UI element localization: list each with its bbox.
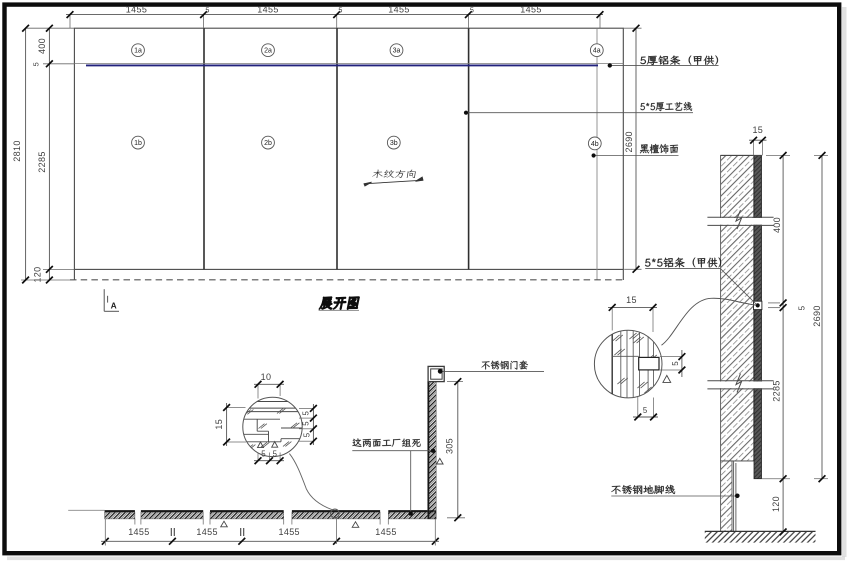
- svg-text:15: 15: [214, 419, 224, 430]
- svg-text:120: 120: [32, 266, 42, 282]
- svg-text:5: 5: [338, 5, 342, 14]
- svg-text:120: 120: [771, 496, 781, 512]
- svg-text:5: 5: [470, 5, 474, 14]
- svg-text:5: 5: [261, 449, 266, 458]
- svg-text:5: 5: [302, 411, 311, 416]
- svg-text:1455: 1455: [128, 527, 149, 537]
- svg-text:305: 305: [445, 438, 455, 454]
- svg-text:3b: 3b: [390, 140, 398, 147]
- svg-text:400: 400: [37, 38, 47, 54]
- svg-text:2285: 2285: [772, 380, 782, 401]
- svg-text:1455: 1455: [278, 527, 299, 537]
- svg-text:5: 5: [302, 421, 311, 426]
- svg-text:1455: 1455: [375, 527, 396, 537]
- svg-text:2b: 2b: [264, 140, 272, 147]
- svg-text:5: 5: [798, 305, 807, 310]
- svg-text:10: 10: [261, 372, 272, 382]
- svg-text:5: 5: [205, 5, 209, 14]
- svg-text:2a: 2a: [264, 48, 272, 55]
- svg-text:5: 5: [671, 361, 680, 366]
- svg-text:15: 15: [626, 295, 637, 305]
- svg-text:1a: 1a: [134, 48, 142, 55]
- svg-text:5: 5: [302, 432, 311, 437]
- svg-text:400: 400: [772, 217, 782, 233]
- svg-text:1b: 1b: [134, 140, 142, 147]
- svg-text:1455: 1455: [388, 4, 409, 14]
- svg-text:3a: 3a: [393, 48, 401, 55]
- svg-text:2690: 2690: [812, 305, 822, 326]
- svg-text:1455: 1455: [257, 4, 278, 14]
- svg-text:2690: 2690: [624, 131, 634, 152]
- svg-text:1455: 1455: [126, 4, 147, 14]
- svg-text:4a: 4a: [593, 48, 601, 55]
- svg-text:4b: 4b: [591, 141, 599, 148]
- svg-text:1455: 1455: [520, 4, 541, 14]
- svg-text:15: 15: [752, 125, 763, 135]
- svg-text:5: 5: [32, 62, 41, 67]
- svg-text:2810: 2810: [12, 140, 22, 161]
- svg-text:1455: 1455: [196, 527, 217, 537]
- svg-text:5: 5: [643, 406, 648, 415]
- svg-text:2285: 2285: [37, 151, 47, 172]
- svg-text:5: 5: [273, 449, 278, 458]
- svg-text:A: A: [111, 301, 117, 311]
